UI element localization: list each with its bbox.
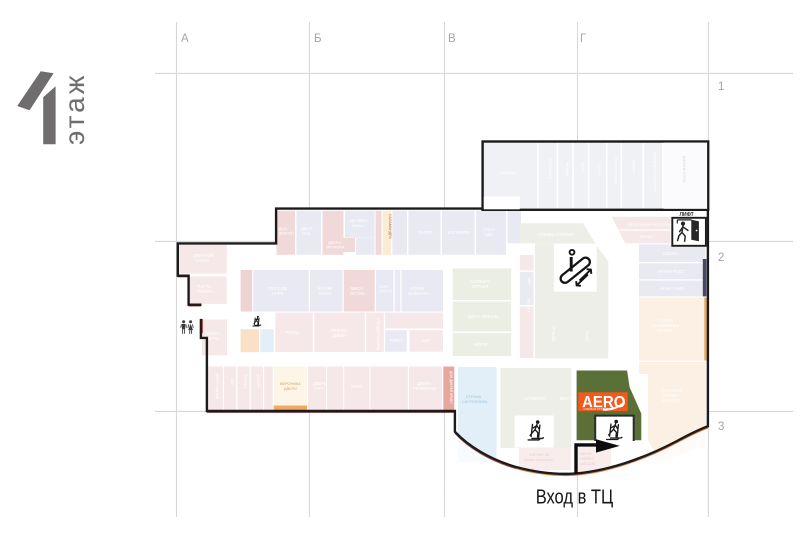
svg-text:ВЕРАС: ВЕРАС: [640, 235, 653, 239]
svg-text:ЛАБ: ЛАБ: [302, 231, 311, 236]
svg-text:ЗАЛМАНН: ЗАЛМАНН: [408, 291, 429, 296]
svg-text:ШКАФЫ КУПЕ: ШКАФЫ КУПЕ: [682, 156, 687, 183]
svg-text:ПАРКЕТ: ПАРКЕТ: [243, 375, 247, 388]
svg-text:ДА ЛИНА: ДА ЛИНА: [350, 218, 369, 223]
svg-text:В: В: [448, 33, 456, 45]
svg-text:ЯРВУД: ЯРВУД: [285, 330, 299, 335]
svg-text:Вход в ТЦ: Вход в ТЦ: [536, 487, 614, 509]
svg-text:СТРАНА: СТРАНА: [466, 395, 481, 399]
svg-text:КОСТАКОВ: КОСТАКОВ: [548, 158, 553, 180]
svg-text:ПАРК: ПАРК: [272, 291, 284, 296]
svg-text:ОДА: ОДА: [484, 232, 493, 237]
svg-text:МАРКАН 30: МАРКАН 30: [529, 453, 549, 457]
svg-text:АРЕ: АРЕ: [527, 278, 531, 286]
svg-text:АРИА УНИВ: АРИА УНИВ: [660, 286, 684, 291]
svg-text:ВЕСТА: ВЕСТА: [560, 396, 574, 401]
svg-text:СТОЛЫ И СТУЛЬЯ: СТОЛЫ И СТУЛЬЯ: [584, 407, 608, 411]
svg-text:SOFA: SOFA: [351, 384, 362, 389]
svg-text:МАНН: МАНН: [319, 291, 331, 296]
svg-text:СТОЛИК СВАН: СТОЛИК СВАН: [614, 156, 619, 184]
svg-text:КУХНИ РОСС: КУХНИ РОСС: [658, 269, 685, 274]
svg-text:РЕГИОНОВ: РЕГИОНОВ: [413, 386, 436, 391]
svg-text:СОСНА: СОСНА: [663, 251, 678, 256]
svg-text:МАССИВ: МАССИВ: [662, 398, 680, 403]
svg-text:МАГАЗ: МАГАЗ: [580, 452, 592, 456]
svg-text:ДЖУН МЕБЕЛЬ: ДЖУН МЕБЕЛЬ: [468, 314, 499, 319]
svg-text:АМИРА: АМИРА: [526, 298, 531, 312]
svg-text:ДВЕРЕЙ: ДВЕРЕЙ: [279, 232, 294, 236]
svg-text:ДВЕРИ: ДВЕРИ: [284, 387, 297, 391]
svg-text:САНТЕХНИКА: САНТЕХНИКА: [462, 400, 488, 404]
svg-text:этаж: этаж: [59, 72, 90, 146]
svg-text:СТОЛЫ СТУЛЬЯ: СТОЛЫ СТУЛЬЯ: [538, 232, 574, 237]
svg-text:РЕГИОНА: РЕГИОНА: [327, 246, 346, 250]
svg-text:ДВЕРИ: ДВЕРИ: [328, 241, 341, 245]
svg-text:ОСТИН: ОСТИН: [350, 291, 365, 296]
svg-text:ДОМ: ДОМ: [279, 227, 287, 231]
svg-text:АРКАДА: АРКАДА: [500, 170, 516, 175]
svg-text:КАСИМИРА: КАСИМИРА: [448, 230, 471, 235]
svg-text:мебель: мебель: [352, 224, 364, 228]
svg-text:МОНДЕ: МОНДЕ: [565, 162, 570, 177]
svg-text:1: 1: [718, 81, 724, 93]
svg-text:ПАРКЕТ: ПАРКЕТ: [580, 457, 595, 461]
svg-text:ЛИФТ: ЛИФТ: [680, 212, 694, 218]
svg-text:ХОЗ: ХОЗ: [230, 378, 234, 385]
svg-text:ДОМ ДВЕРЕЙ БРАВО: ДОМ ДВЕРЕЙ БРАВО: [449, 371, 453, 404]
svg-text:3: 3: [718, 421, 724, 433]
svg-text:ДИВАН: ДИВАН: [332, 333, 346, 338]
svg-text:Б: Б: [314, 33, 322, 45]
svg-text:ОРИВОКС: ОРИВОКС: [524, 396, 545, 401]
svg-text:СТАНДАРТ МЕБЕЛЬ: СТАНДАРТ МЕБЕЛЬ: [376, 318, 380, 351]
svg-text:МАССИВ: МАССИВ: [580, 462, 596, 466]
svg-text:МАСТЕР: МАСТЕР: [256, 375, 260, 390]
svg-text:ПАРК: ПАРК: [379, 285, 388, 289]
svg-text:МОРЖ: МОРЖ: [474, 342, 487, 347]
svg-text:ЮГА: ЮГА: [315, 386, 324, 391]
svg-text:А: А: [181, 33, 189, 45]
svg-text:ПОЛОВ: ПОЛОВ: [657, 328, 672, 333]
svg-text:ТОРЕХ: ТОРЕХ: [389, 338, 403, 343]
svg-text:ПАОЛА: ПАОЛА: [418, 230, 433, 235]
svg-text:ЗАМКИ: ЗАМКИ: [632, 160, 637, 174]
svg-text:МЕБЕЛЬН АССОРТИ: МЕБЕЛЬН АССОРТИ: [653, 152, 658, 192]
svg-text:лучшие механизмы: лучшие механизмы: [524, 458, 554, 462]
svg-text:ДВЕРИ ЗОДЧИЙ: ДВЕРИ ЗОДЧИЙ: [215, 373, 219, 400]
svg-text:МЕБЕЛЬНАЯ АССОРТИ: МЕБЕЛЬНАЯ АССОРТИ: [628, 223, 671, 227]
svg-text:НИКА: НИКА: [581, 162, 586, 173]
svg-text:ТЕРЕЗА: ТЕРЕЗА: [551, 326, 556, 342]
svg-text:2: 2: [718, 252, 724, 264]
svg-text:САЛАМАНДРА: САЛАМАНДРА: [388, 214, 392, 239]
svg-text:АВОА: АВОА: [584, 331, 589, 342]
svg-text:ЛИАНА: ЛИАНА: [597, 162, 602, 176]
svg-text:ПРИМА: ПРИМА: [197, 289, 212, 294]
svg-text:СОЮЗ: СОЮЗ: [196, 258, 209, 263]
svg-text:Г: Г: [580, 33, 587, 45]
svg-text:НИТ: НИТ: [421, 338, 430, 343]
svg-text:СТУЛЬЯ: СТУЛЬЯ: [472, 284, 488, 289]
svg-text:ПОЛ ХЛ: ПОЛ ХЛ: [379, 289, 392, 293]
svg-text:ВЕРОНИКА: ВЕРОНИКА: [280, 382, 301, 386]
